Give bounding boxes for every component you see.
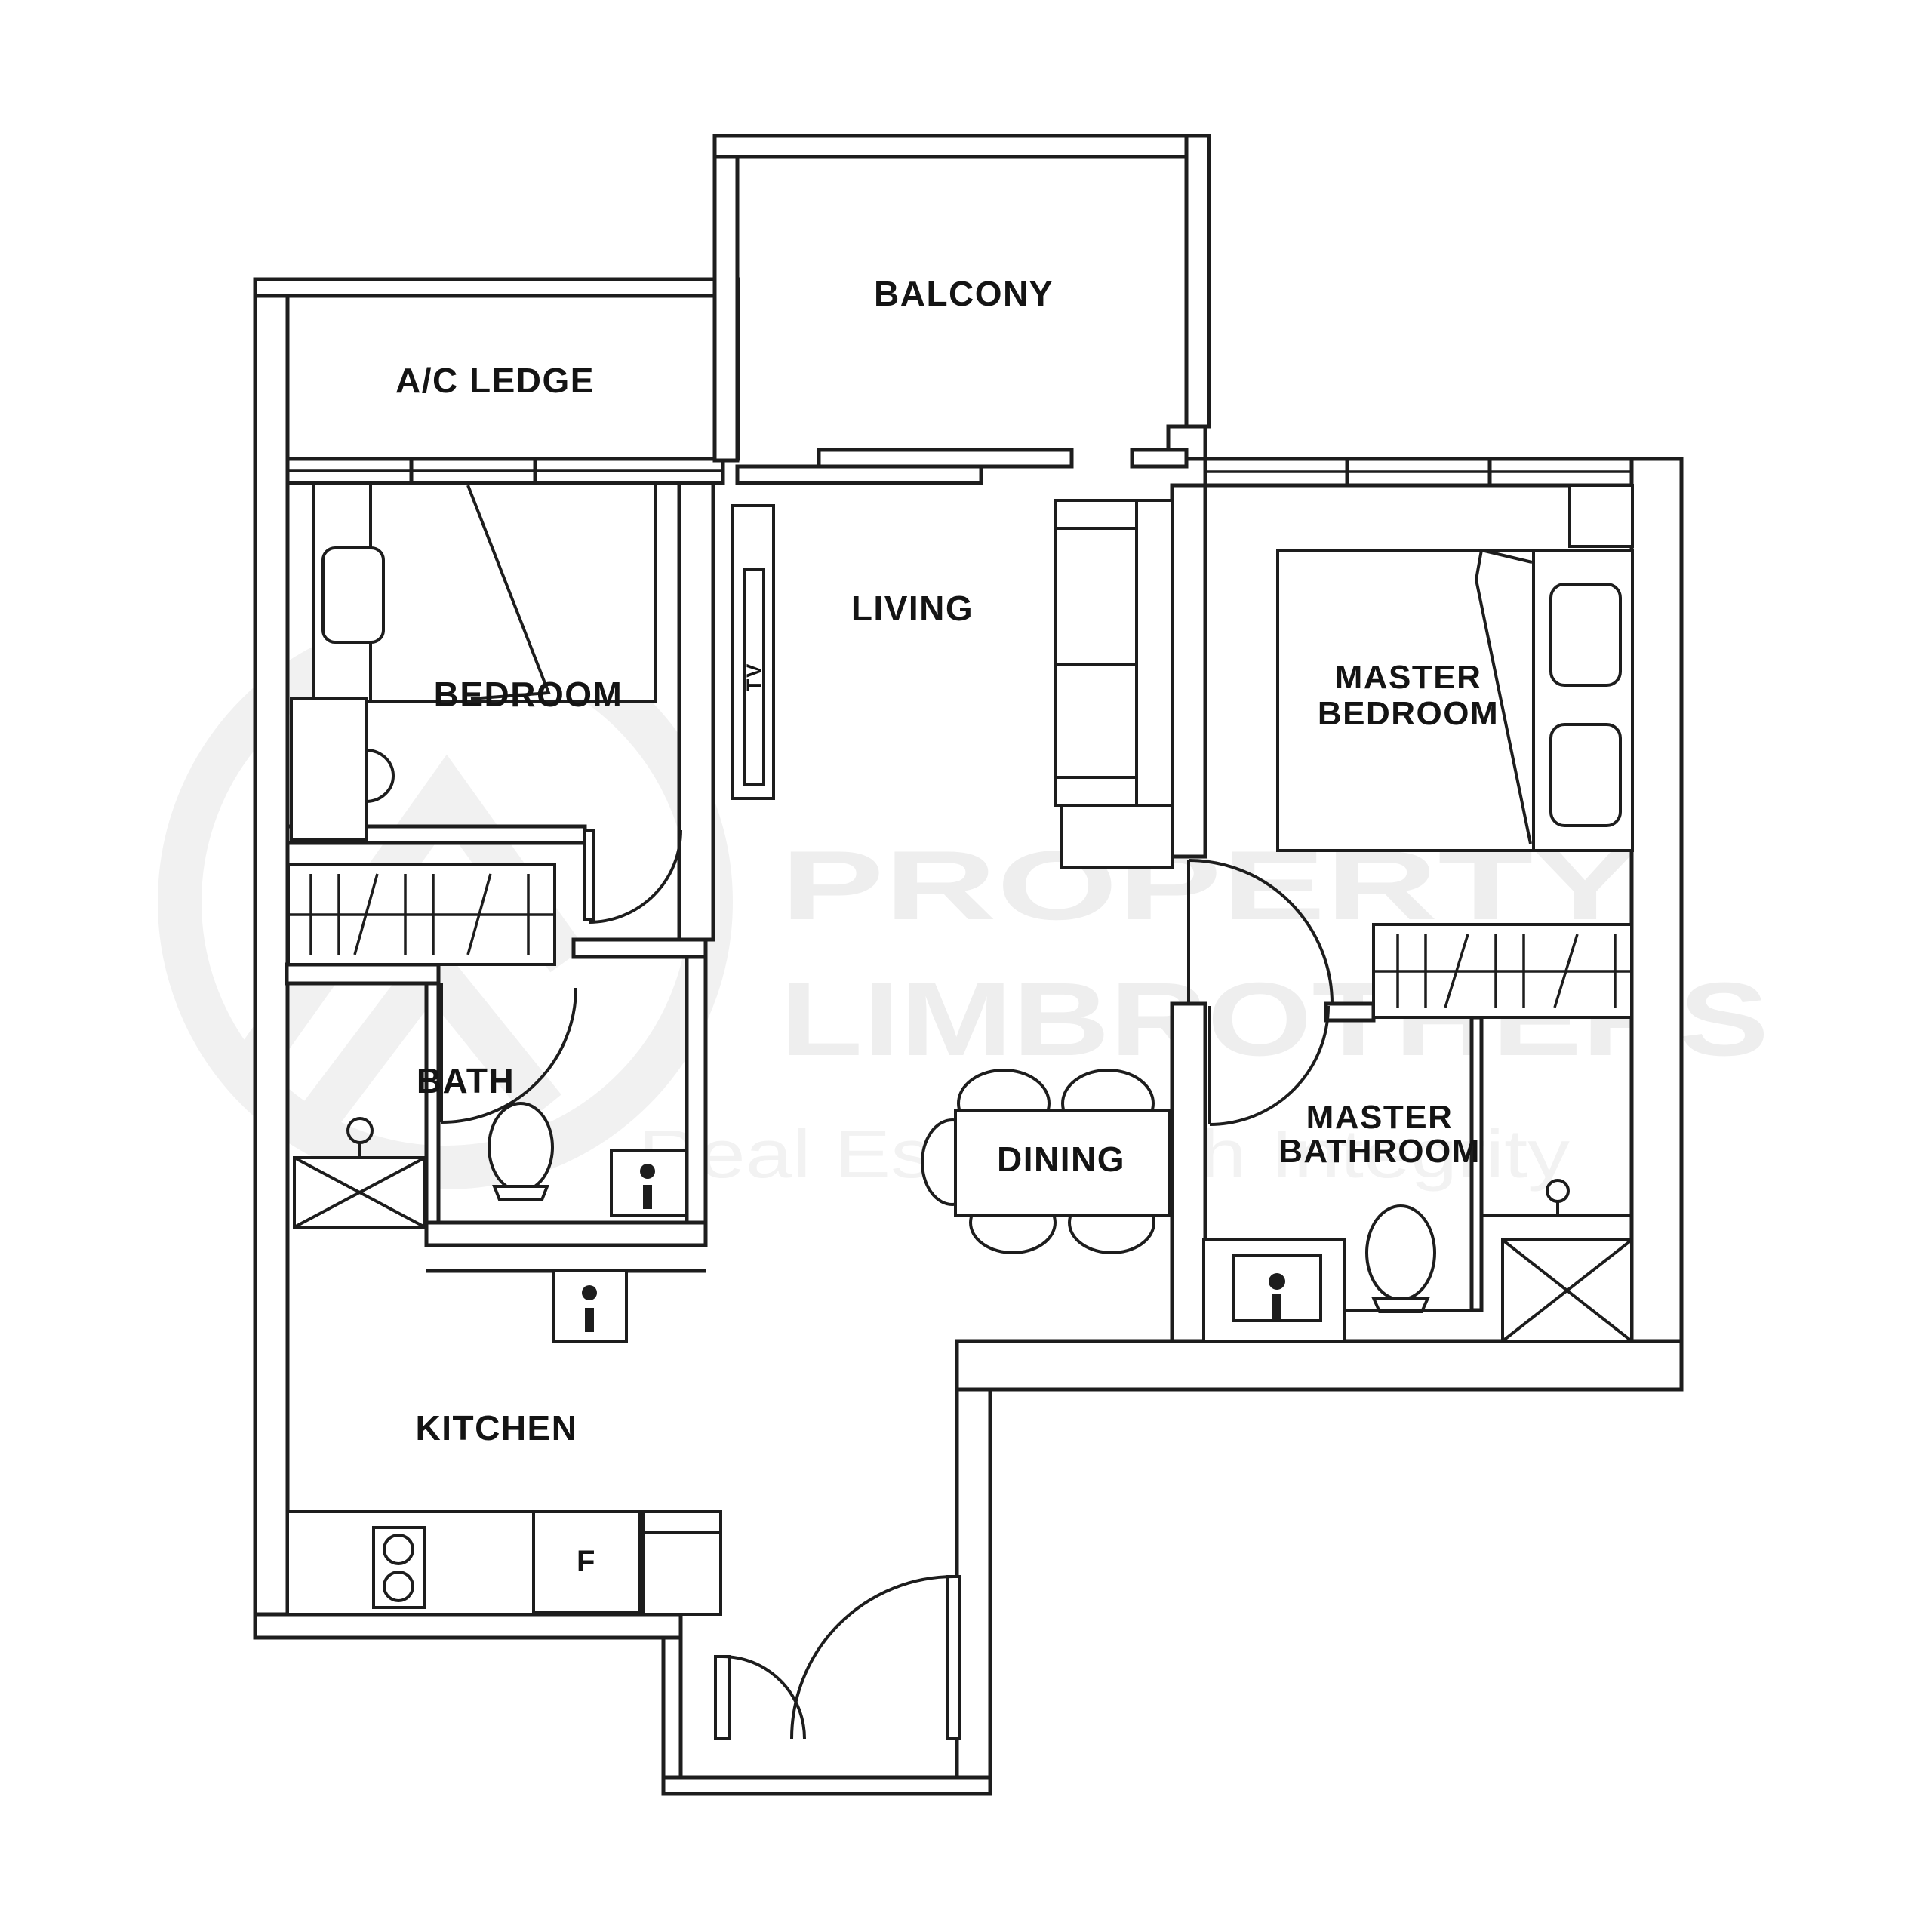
label-master-bathroom-1: MASTER: [1306, 1099, 1454, 1136]
label-bedroom: BEDROOM: [434, 675, 623, 714]
label-dining: DINING: [997, 1140, 1125, 1179]
label-balcony: BALCONY: [874, 274, 1054, 313]
wall-master-left-upper: [1172, 485, 1205, 857]
wall-bath-top-right: [574, 940, 706, 957]
label-master-bedroom-1: MASTER: [1335, 659, 1482, 696]
wall-foyer-right: [957, 1389, 990, 1794]
bed-single-pillow: [323, 548, 383, 642]
sink-bath-drain-dot: [640, 1164, 655, 1179]
bedroom-door-leaf: [585, 830, 593, 919]
label-ac-ledge: A/C LEDGE: [395, 361, 595, 400]
wall-entry-left: [663, 1638, 681, 1794]
label-master-bathroom-2: BATHROOM: [1278, 1133, 1481, 1170]
label-fridge: F: [577, 1545, 596, 1578]
wall-masterbath-top-stub: [1326, 1004, 1374, 1020]
window-master-bedroom: [1205, 459, 1632, 485]
yard-shaft-xbox: [294, 1158, 425, 1227]
entry-door-swing-large: [792, 1577, 954, 1739]
toilet-bath: [489, 1103, 552, 1191]
label-bath: BATH: [417, 1061, 515, 1100]
wall-yard-divider: [426, 983, 438, 1245]
wall-acledge-top: [255, 279, 738, 296]
bedroom-door-swing: [589, 830, 681, 922]
wall-bath-right: [687, 957, 706, 1245]
balcony-sliding-door: [737, 450, 1186, 483]
stove: [374, 1527, 424, 1607]
floor-plan-page: PROPERTY LIMBROTHERS Real Estate with In…: [0, 0, 1932, 1932]
wall-balcony-top: [715, 136, 1209, 157]
wall-bedroom-living: [679, 483, 713, 940]
masterbath-shaft-xbox: [1503, 1240, 1632, 1341]
wall-bath-top-left: [287, 964, 438, 983]
window-bedroom: [288, 459, 723, 483]
label-tv: TV: [743, 663, 765, 692]
wall-balcony-left: [715, 136, 737, 460]
wardrobe-bedroom: [288, 864, 555, 964]
wall-balcony-right: [1186, 136, 1209, 426]
masterbath-sink-dot: [1269, 1273, 1285, 1290]
entry-door-leaf-large: [947, 1577, 960, 1739]
sink-bath-tap: [643, 1185, 652, 1209]
sofa-side-table: [1061, 805, 1172, 868]
label-master-bedroom-2: BEDROOM: [1318, 695, 1499, 732]
sofa-body: [1055, 500, 1172, 805]
wall-left-outer: [255, 279, 288, 1638]
wall-right-outer: [1632, 459, 1681, 1389]
bedroom-chair: [366, 750, 393, 801]
fixtures-master-bathroom: [1204, 1180, 1632, 1341]
toilet-bath-base: [494, 1186, 547, 1200]
wall-master-left-lower: [1172, 1004, 1205, 1341]
toilet-master: [1367, 1206, 1435, 1300]
floor-plan-svg: PROPERTY LIMBROTHERS Real Estate with In…: [0, 0, 1932, 1932]
masterbath-sink-tap: [1272, 1294, 1281, 1319]
wall-entry-bottom: [663, 1777, 990, 1794]
bedside-table: [1570, 485, 1632, 546]
bedroom-desk: [291, 698, 366, 840]
wall-bottom-right: [957, 1341, 1681, 1389]
kitchen-rack: [643, 1512, 721, 1614]
kitchen-sink-tap: [585, 1308, 594, 1332]
bed-master-pillow: [1551, 584, 1620, 685]
bed-master-pillow: [1551, 724, 1620, 826]
furniture-living: [1055, 500, 1172, 868]
wardrobe-master: [1374, 924, 1632, 1017]
label-living: LIVING: [851, 589, 974, 628]
wall-kitchen-bottom: [255, 1614, 681, 1638]
kitchen-sink-dot: [582, 1285, 597, 1300]
label-kitchen: KITCHEN: [416, 1408, 578, 1447]
wall-bath-bottom: [426, 1223, 706, 1245]
entry-door-leaf-small: [715, 1657, 729, 1739]
